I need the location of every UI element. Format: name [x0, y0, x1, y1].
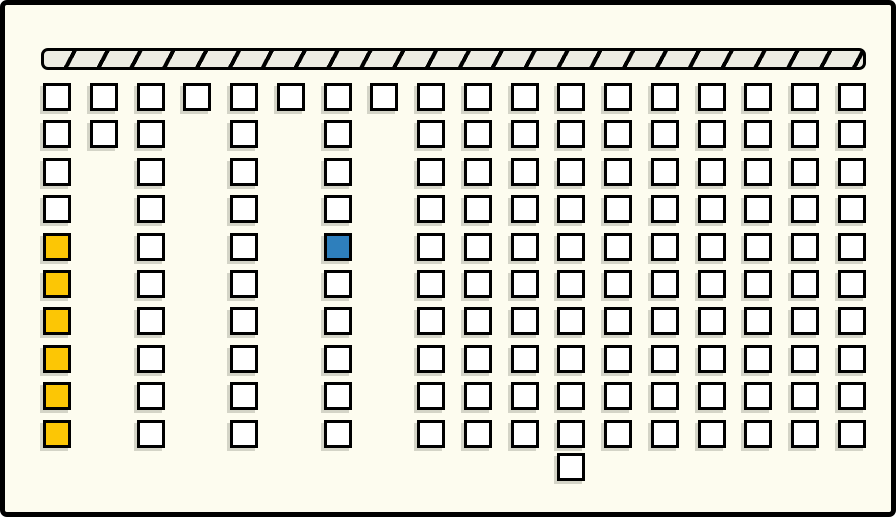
grid-cell[interactable] — [230, 120, 258, 148]
grid-cell[interactable] — [230, 83, 258, 111]
grid-cell[interactable] — [324, 120, 352, 148]
grid-cell[interactable] — [417, 195, 445, 223]
grid-cell[interactable] — [651, 120, 679, 148]
grid-cell[interactable] — [557, 270, 585, 298]
grid-cell[interactable] — [230, 307, 258, 335]
grid-cell[interactable] — [744, 307, 772, 335]
grid-cell[interactable] — [698, 195, 726, 223]
grid-cell[interactable] — [557, 382, 585, 410]
grid-cell[interactable] — [604, 120, 632, 148]
grid-cell[interactable] — [324, 270, 352, 298]
grid-cell[interactable] — [324, 345, 352, 373]
diagram-canvas — [0, 0, 896, 517]
grid-cell[interactable] — [137, 307, 165, 335]
grid-cell[interactable] — [651, 233, 679, 261]
grid-cell[interactable] — [511, 120, 539, 148]
grid-cell[interactable] — [791, 345, 819, 373]
grid-cell[interactable] — [604, 382, 632, 410]
grid-cell[interactable] — [464, 195, 492, 223]
grid-cell[interactable] — [651, 270, 679, 298]
grid-cell[interactable] — [791, 420, 819, 448]
grid-cell[interactable] — [838, 270, 866, 298]
grid-cell[interactable] — [651, 158, 679, 186]
grid-cell[interactable] — [604, 345, 632, 373]
grid-cell[interactable] — [511, 83, 539, 111]
grid-cell[interactable] — [137, 382, 165, 410]
grid-cell[interactable] — [230, 420, 258, 448]
grid-cell[interactable] — [43, 158, 71, 186]
grid-cell[interactable] — [604, 195, 632, 223]
grid-cell[interactable] — [417, 345, 445, 373]
grid-cell[interactable] — [511, 233, 539, 261]
grid-cell[interactable] — [744, 233, 772, 261]
grid-cell[interactable] — [557, 120, 585, 148]
grid-cell[interactable] — [511, 307, 539, 335]
grid-cell[interactable] — [43, 83, 71, 111]
grid-cell[interactable] — [137, 270, 165, 298]
grid-cell[interactable] — [90, 120, 118, 148]
grid-cell[interactable] — [43, 120, 71, 148]
grid-cell[interactable] — [370, 83, 398, 111]
grid-cell[interactable] — [604, 83, 632, 111]
grid-cell[interactable] — [557, 195, 585, 223]
grid-cell[interactable] — [838, 120, 866, 148]
grid-cell[interactable] — [651, 83, 679, 111]
grid-cell[interactable] — [698, 420, 726, 448]
grid-cell[interactable] — [744, 83, 772, 111]
grid-cell[interactable] — [43, 270, 71, 298]
grid-cell[interactable] — [417, 382, 445, 410]
grid-cell[interactable] — [791, 158, 819, 186]
grid-cell[interactable] — [511, 158, 539, 186]
grid-cell[interactable] — [698, 158, 726, 186]
grid-cell[interactable] — [838, 195, 866, 223]
grid-cell[interactable] — [791, 83, 819, 111]
grid-cell[interactable] — [698, 270, 726, 298]
grid-cell[interactable] — [838, 83, 866, 111]
grid-cell[interactable] — [464, 233, 492, 261]
grid-cell[interactable] — [604, 158, 632, 186]
grid-cell[interactable] — [464, 420, 492, 448]
grid-cell[interactable] — [43, 307, 71, 335]
grid-cell[interactable] — [417, 270, 445, 298]
grid-cell[interactable] — [557, 233, 585, 261]
grid-cell[interactable] — [417, 120, 445, 148]
grid-cell[interactable] — [557, 158, 585, 186]
grid-cell[interactable] — [324, 83, 352, 111]
grid-cell[interactable] — [744, 420, 772, 448]
grid-cell[interactable] — [651, 382, 679, 410]
grid-cell[interactable] — [651, 345, 679, 373]
grid-cell[interactable] — [511, 382, 539, 410]
grid-cell[interactable] — [324, 195, 352, 223]
grid-cell[interactable] — [744, 345, 772, 373]
grid-cell[interactable] — [791, 307, 819, 335]
grid-cell[interactable] — [557, 453, 585, 481]
grid-cell[interactable] — [137, 120, 165, 148]
grid-cell[interactable] — [43, 233, 71, 261]
grid-cell[interactable] — [464, 270, 492, 298]
grid-cell[interactable] — [43, 420, 71, 448]
grid-cell[interactable] — [791, 382, 819, 410]
grid-cell[interactable] — [838, 307, 866, 335]
grid-cell[interactable] — [604, 307, 632, 335]
grid-cell[interactable] — [744, 270, 772, 298]
grid-cell[interactable] — [324, 233, 352, 261]
grid-cell[interactable] — [230, 233, 258, 261]
grid-cell[interactable] — [791, 120, 819, 148]
grid-cell[interactable] — [604, 233, 632, 261]
grid-cell[interactable] — [744, 120, 772, 148]
grid-cell[interactable] — [651, 307, 679, 335]
grid-cell[interactable] — [698, 120, 726, 148]
grid-cell[interactable] — [791, 270, 819, 298]
grid-cell[interactable] — [744, 195, 772, 223]
grid-cell[interactable] — [324, 382, 352, 410]
grid-cell[interactable] — [838, 420, 866, 448]
grid-cell[interactable] — [651, 195, 679, 223]
grid-cell[interactable] — [604, 270, 632, 298]
grid-cell[interactable] — [838, 345, 866, 373]
grid-cell[interactable] — [464, 120, 492, 148]
grid-cell[interactable] — [230, 382, 258, 410]
grid-cell[interactable] — [417, 158, 445, 186]
grid-cell[interactable] — [137, 158, 165, 186]
grid-cell[interactable] — [43, 195, 71, 223]
grid-cell[interactable] — [838, 158, 866, 186]
grid-cell[interactable] — [230, 270, 258, 298]
grid-cell[interactable] — [464, 345, 492, 373]
grid-cell[interactable] — [324, 420, 352, 448]
grid-cell[interactable] — [417, 83, 445, 111]
grid-cell[interactable] — [511, 195, 539, 223]
grid-cell[interactable] — [137, 345, 165, 373]
grid-cell[interactable] — [838, 382, 866, 410]
grid-cell[interactable] — [744, 158, 772, 186]
grid-cell[interactable] — [698, 233, 726, 261]
grid-cell[interactable] — [464, 307, 492, 335]
grid-cell[interactable] — [324, 307, 352, 335]
grid-cell[interactable] — [324, 158, 352, 186]
grid-cell[interactable] — [230, 345, 258, 373]
grid-cell[interactable] — [417, 307, 445, 335]
grid-cell[interactable] — [464, 83, 492, 111]
grid-cell[interactable] — [137, 83, 165, 111]
grid-cell[interactable] — [604, 420, 632, 448]
grid-cell[interactable] — [651, 420, 679, 448]
grid-cell[interactable] — [557, 307, 585, 335]
grid-cell[interactable] — [230, 195, 258, 223]
grid-cell[interactable] — [464, 382, 492, 410]
grid-cell[interactable] — [137, 420, 165, 448]
grid-cell[interactable] — [698, 345, 726, 373]
grid-cell[interactable] — [417, 233, 445, 261]
grid-cell[interactable] — [90, 83, 118, 111]
grid-cell[interactable] — [137, 195, 165, 223]
grid-cell[interactable] — [230, 158, 258, 186]
grid-cell[interactable] — [557, 345, 585, 373]
grid-cell[interactable] — [183, 83, 211, 111]
grid-cell[interactable] — [43, 382, 71, 410]
grid-cell[interactable] — [511, 270, 539, 298]
grid-cell[interactable] — [557, 83, 585, 111]
grid-cell[interactable] — [698, 382, 726, 410]
grid-cell[interactable] — [557, 420, 585, 448]
grid-cell[interactable] — [511, 345, 539, 373]
grid-cell[interactable] — [417, 420, 445, 448]
grid-cell[interactable] — [277, 83, 305, 111]
grid-cell[interactable] — [137, 233, 165, 261]
grid-cell[interactable] — [464, 158, 492, 186]
grid-cell[interactable] — [838, 233, 866, 261]
grid-cell[interactable] — [511, 420, 539, 448]
grid-cell[interactable] — [744, 382, 772, 410]
grid-cell[interactable] — [698, 83, 726, 111]
hatched-bar — [41, 48, 866, 70]
grid-cell[interactable] — [791, 195, 819, 223]
grid-cell[interactable] — [791, 233, 819, 261]
grid-cell[interactable] — [43, 345, 71, 373]
grid-cell[interactable] — [698, 307, 726, 335]
